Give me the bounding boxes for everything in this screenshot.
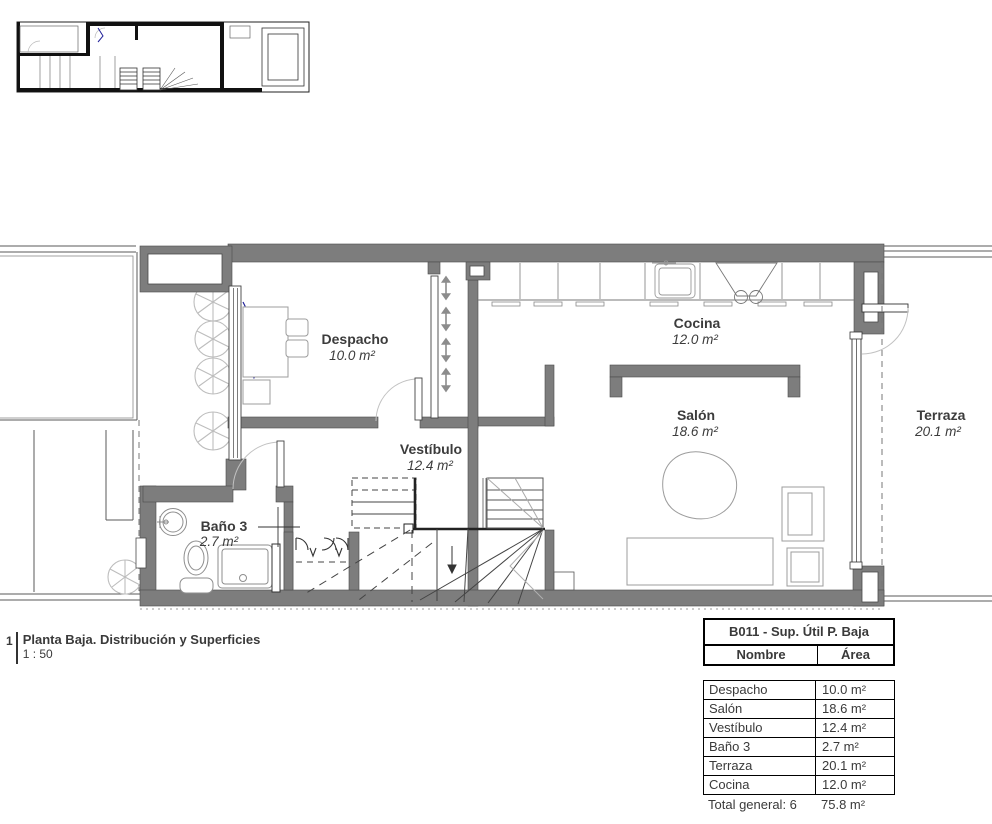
salon-furniture <box>627 452 824 586</box>
tree-icon <box>195 358 231 394</box>
schedule-row: Vestíbulo 12.4 m² <box>704 719 894 738</box>
stairs-upper-flight <box>483 478 543 528</box>
schedule-cell-area: 20.1 m² <box>816 757 894 775</box>
schedule-cell-area: 18.6 m² <box>816 700 894 718</box>
sliding-door-salon <box>850 332 862 569</box>
room-label-despacho: Despacho <box>322 331 389 347</box>
rug-blob <box>663 452 737 519</box>
kitchen-counter <box>478 261 854 306</box>
stairs <box>303 478 545 604</box>
room-area-vestibulo: 12.4 m² <box>407 458 453 473</box>
schedule-cell-name: Vestíbulo <box>704 719 816 737</box>
tree-icon <box>194 412 232 450</box>
shower-tray <box>218 545 272 588</box>
wall-shaft-right <box>468 280 478 606</box>
bath-window <box>136 538 146 568</box>
room-area-terraza: 20.1 m² <box>914 424 961 439</box>
wardrobe-closet <box>296 538 348 562</box>
schedule-col-area: Área <box>818 646 893 664</box>
armchair <box>782 487 824 541</box>
room-area-bano3: 2.7 m² <box>199 534 239 549</box>
door-despacho <box>376 378 422 421</box>
room-area-despacho: 10.0 m² <box>329 348 375 363</box>
schedule-row: Cocina 12.0 m² <box>704 776 894 794</box>
cabinet-handles <box>492 302 832 306</box>
schedule-cell-area: 12.4 m² <box>816 719 894 737</box>
mixer-cross-icon <box>258 507 300 547</box>
schedule-cell-name: Cocina <box>704 776 816 794</box>
schedule-cell-name: Baño 3 <box>704 738 816 756</box>
schedule-row: Despacho 10.0 m² <box>704 681 894 700</box>
wall-bottom <box>140 590 884 606</box>
room-area-salon: 18.6 m² <box>672 424 718 439</box>
sofa <box>627 538 773 585</box>
office-chair <box>286 319 308 336</box>
shaft <box>431 276 450 418</box>
schedule-cell-name: Salón <box>704 700 816 718</box>
view-name: Planta Baja. Distribución y Superficies <box>23 632 261 647</box>
schedule-body: Despacho 10.0 m² Salón 18.6 m² Vestíbulo… <box>703 680 895 795</box>
shower-screen <box>272 544 280 592</box>
schedule-table: B011 - Sup. Útil P. Baja Nombre Área Des… <box>703 618 895 814</box>
tree-icon <box>195 321 231 357</box>
schedule-row: Baño 3 2.7 m² <box>704 738 894 757</box>
side-table <box>787 548 823 586</box>
stairs-direction-arrow-icon <box>448 546 456 573</box>
schedule-total-label: Total general: 6 <box>703 795 815 814</box>
schedule-row: Salón 18.6 m² <box>704 700 894 719</box>
key-plan <box>17 22 309 92</box>
schedule-cell-area: 2.7 m² <box>816 738 894 756</box>
schedule-row: Terraza 20.1 m² <box>704 757 894 776</box>
wall-bath-top <box>143 486 233 502</box>
schedule-cell-area: 12.0 m² <box>816 776 894 794</box>
wall-closet-right <box>349 532 359 590</box>
porch <box>148 254 222 284</box>
despacho-furniture <box>243 307 308 404</box>
room-label-salon: Salón <box>677 407 715 423</box>
wall-closet-left <box>284 532 293 590</box>
wall-salon-partition <box>610 365 800 377</box>
schedule-total-value: 75.8 m² <box>815 795 895 814</box>
view-title-divider <box>16 632 18 664</box>
room-label-vestibulo: Vestíbulo <box>400 441 462 457</box>
view-number: 1 <box>6 634 13 648</box>
room-label-terraza: Terraza <box>917 407 966 423</box>
site-context <box>0 246 140 600</box>
room-area-cocina: 12.0 m² <box>672 332 718 347</box>
desk <box>243 307 288 377</box>
view-title: 1 Planta Baja. Distribución y Superficie… <box>6 632 260 664</box>
schedule-cell-area: 10.0 m² <box>816 681 894 699</box>
schedule-cell-name: Despacho <box>704 681 816 699</box>
wall-despacho-bottom <box>228 417 378 428</box>
room-label-bano3: Baño 3 <box>201 518 248 534</box>
view-scale: 1 : 50 <box>23 647 261 662</box>
cabinet <box>243 380 270 404</box>
schedule-cell-name: Terraza <box>704 757 816 775</box>
sink <box>652 261 695 298</box>
wall-top <box>228 244 884 262</box>
drawing-sheet: Despacho 10.0 m² Cocina 12.0 m² Salón 18… <box>0 0 992 824</box>
schedule-col-nombre: Nombre <box>705 646 818 664</box>
schedule-header: Nombre Área <box>703 646 895 666</box>
bath-sink-icon <box>157 509 187 536</box>
schedule-total-row: Total general: 6 75.8 m² <box>703 795 895 814</box>
cooker-hood-icon <box>716 263 777 296</box>
room-label-cocina: Cocina <box>674 315 721 331</box>
schedule-title: B011 - Sup. Útil P. Baja <box>703 618 895 646</box>
shaft-arrows <box>443 277 450 391</box>
